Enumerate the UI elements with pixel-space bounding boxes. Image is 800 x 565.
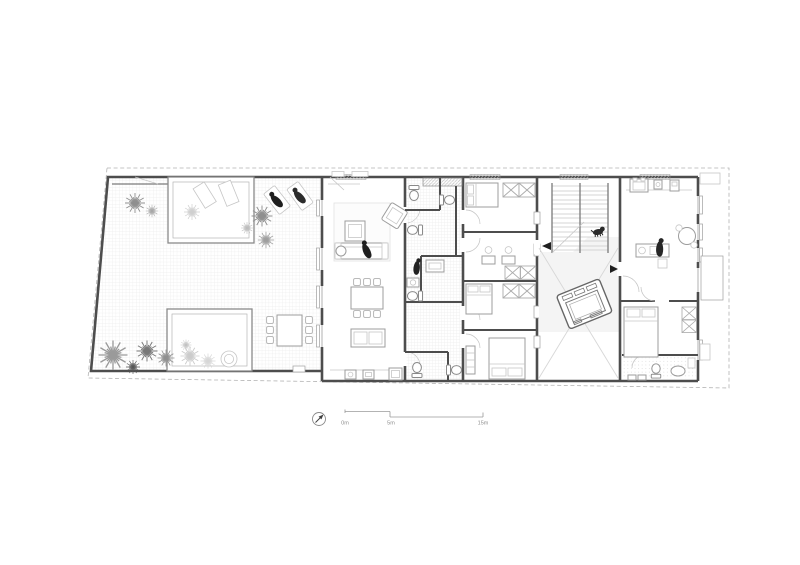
bedroom-2-furniture <box>482 247 536 280</box>
wall-hatch <box>470 175 500 180</box>
garden-gate <box>293 366 305 372</box>
toilet-icon <box>412 363 422 378</box>
kitchen-counter <box>330 368 402 380</box>
toilet-icon <box>440 195 455 205</box>
door-arc <box>466 238 480 252</box>
scale-label-start: 0m <box>341 421 349 427</box>
chair-icon <box>485 247 492 254</box>
kitchen-island <box>636 244 669 257</box>
living-room <box>328 172 420 382</box>
wardrobe-icon <box>505 266 520 279</box>
stool <box>658 259 667 268</box>
scale-label-mid: 5m <box>387 421 395 427</box>
door-arc <box>466 210 480 224</box>
bedroom-4-furniture <box>466 338 525 379</box>
scale-bar: 0m 5m 15m <box>341 410 489 427</box>
wardrobe-icon <box>503 284 519 298</box>
stair-hall <box>534 177 623 381</box>
east-apartment <box>620 178 698 380</box>
toilet-icon <box>409 186 419 201</box>
bedrooms <box>460 177 540 381</box>
chair-icon <box>354 279 361 286</box>
outdoor-table <box>277 315 302 346</box>
bathroom-corridor <box>405 177 463 381</box>
built-in-shelf <box>423 178 462 186</box>
chair-icon <box>306 327 313 334</box>
door-arc <box>623 276 639 292</box>
kitchenette <box>626 178 692 192</box>
chair-icon <box>676 225 682 231</box>
wardrobe-icon <box>519 284 535 298</box>
chair-icon <box>691 242 697 248</box>
toilet-icon <box>651 364 661 378</box>
wardrobe-icon <box>503 183 519 197</box>
bath-unit <box>628 375 636 380</box>
chair-icon <box>354 311 361 318</box>
planter-north <box>168 177 254 243</box>
bedroom-1-furniture <box>466 183 535 207</box>
washbasin <box>671 366 685 376</box>
door-arc <box>641 287 655 301</box>
chair-icon <box>374 311 381 318</box>
bedroom-3-furniture <box>466 284 535 314</box>
chair-icon <box>374 279 381 286</box>
wardrobe-icon <box>682 307 696 320</box>
side-table <box>336 246 346 256</box>
balcony <box>701 256 723 300</box>
entry-stoop <box>700 173 720 184</box>
chair-icon <box>306 337 313 344</box>
floor-plan-canvas: 0m 5m 15m <box>0 0 800 565</box>
chair-icon <box>267 337 274 344</box>
desk <box>502 256 515 264</box>
toilet-icon <box>408 291 423 301</box>
facade-nook <box>332 172 344 177</box>
east-bedroom-furniture <box>624 307 696 357</box>
entry-arrow-icon <box>542 242 551 250</box>
outdoor-dining-set <box>267 315 313 346</box>
wardrobe-icon <box>682 320 696 333</box>
chair-icon <box>306 317 313 324</box>
dining-table <box>351 287 383 309</box>
facade-nook <box>352 172 368 177</box>
rear-step <box>700 344 710 360</box>
bath-unit <box>638 375 646 380</box>
chair-icon <box>505 247 512 254</box>
dining-set <box>351 279 383 318</box>
wall-hatch <box>560 175 588 180</box>
garden-terrace <box>91 177 322 374</box>
east-bathroom <box>622 357 696 380</box>
cafe-table <box>676 225 697 248</box>
planter-south <box>167 309 252 371</box>
chair-icon <box>364 279 371 286</box>
wardrobe-icon <box>521 266 536 279</box>
desk <box>482 256 495 264</box>
shelf <box>688 358 695 368</box>
chair-icon <box>364 311 371 318</box>
scale-label-end: 15m <box>478 421 489 427</box>
toilet-icon <box>408 225 423 235</box>
daybed <box>351 329 385 347</box>
chair-icon <box>267 327 274 334</box>
wardrobe-icon <box>519 183 535 197</box>
chair-icon <box>267 317 274 324</box>
north-arrow-icon <box>313 413 326 426</box>
toilet-icon <box>447 365 462 375</box>
